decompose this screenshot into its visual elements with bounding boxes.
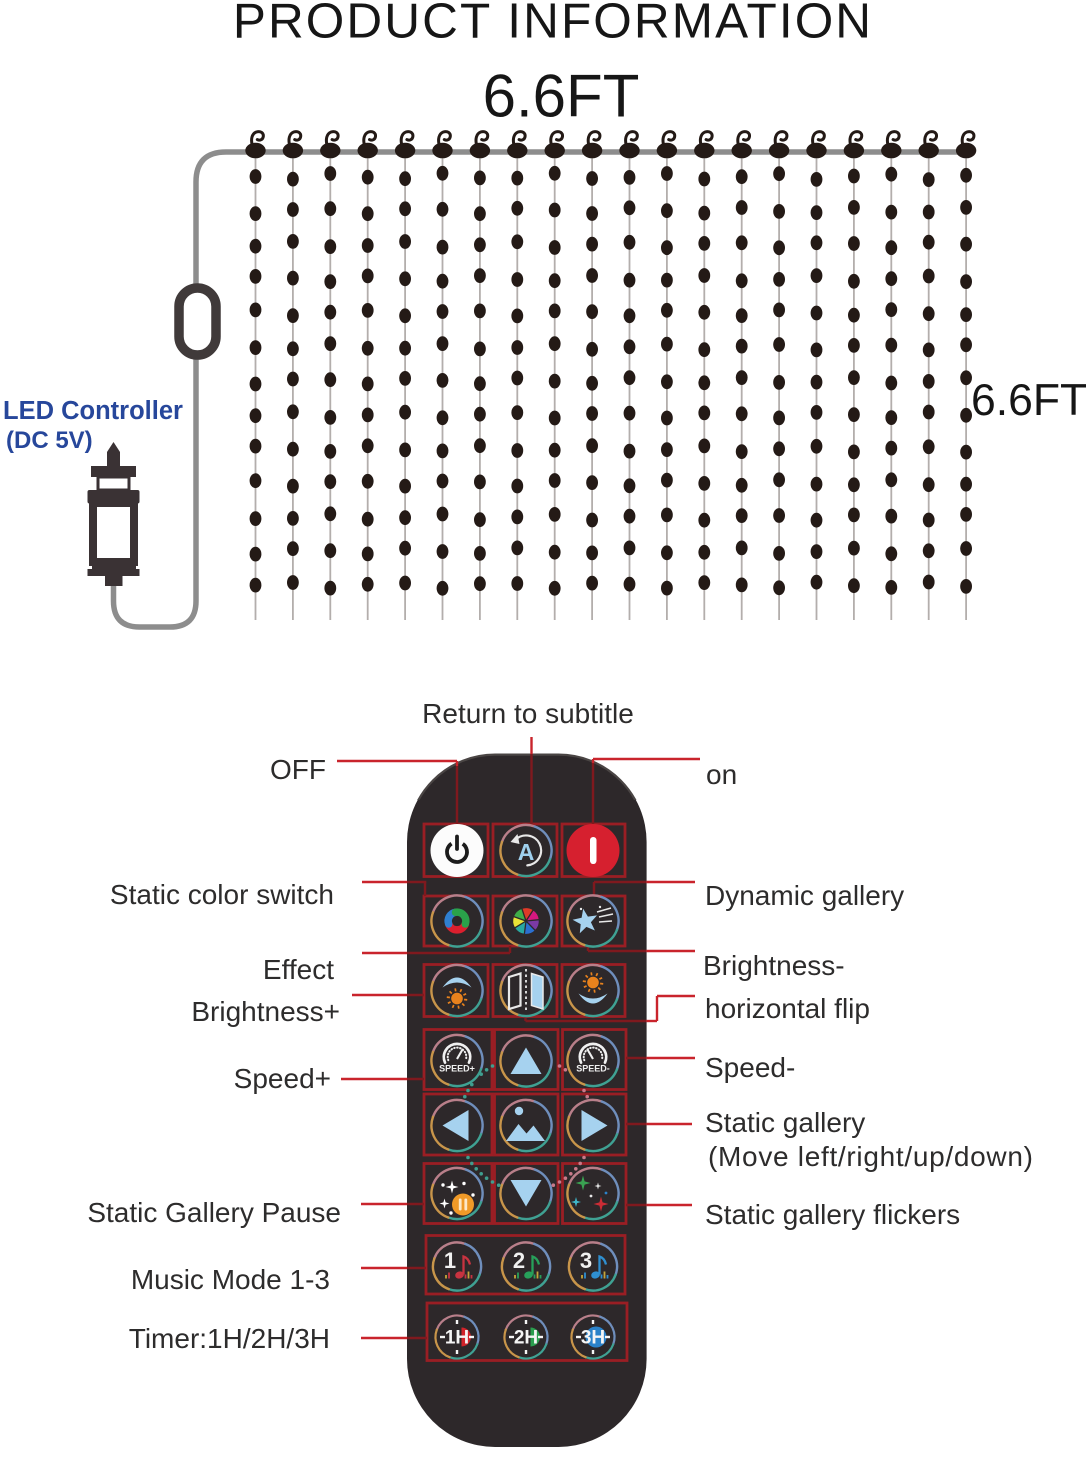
svg-text:Return to subtitle: Return to subtitle [422,698,634,729]
svg-text:SPEED+: SPEED+ [439,1064,475,1074]
svg-text:Timer:1H/2H/3H: Timer:1H/2H/3H [129,1323,330,1354]
svg-text:3: 3 [580,1248,592,1273]
svg-text:Brightness+: Brightness+ [191,996,340,1027]
svg-text:Static color switch: Static color switch [110,879,334,910]
svg-text:LED Controller: LED Controller [3,397,183,425]
svg-text:1: 1 [444,1248,456,1273]
svg-text:(DC 5V): (DC 5V) [6,427,93,454]
svg-text:6.6FT: 6.6FT [483,63,640,130]
svg-text:6.6FT: 6.6FT [971,376,1086,425]
svg-text:Speed+: Speed+ [234,1063,331,1094]
svg-text:1H: 1H [445,1328,469,1349]
svg-text:Dynamic gallery: Dynamic gallery [705,880,904,911]
svg-text:SPEED-: SPEED- [576,1064,610,1074]
svg-text:Effect: Effect [263,954,334,985]
svg-text:Static gallery flickers: Static gallery flickers [705,1199,960,1230]
svg-text:Speed-: Speed- [705,1052,795,1083]
svg-text:(Move left/right/up/down): (Move left/right/up/down) [708,1141,1034,1172]
svg-text:Music Mode 1-3: Music Mode 1-3 [131,1264,330,1295]
svg-text:Static gallery: Static gallery [705,1107,865,1138]
svg-text:OFF: OFF [270,754,326,785]
svg-text:Static Gallery Pause: Static Gallery Pause [87,1197,341,1228]
svg-text:horizontal flip: horizontal flip [705,993,870,1024]
svg-text:PRODUCT INFORMATION: PRODUCT INFORMATION [233,0,873,49]
svg-text:2: 2 [513,1248,525,1273]
svg-text:A: A [518,839,535,865]
svg-text:3H: 3H [581,1328,605,1349]
svg-text:Brightness-: Brightness- [703,950,845,981]
svg-text:2H: 2H [514,1328,538,1349]
svg-text:on: on [706,759,737,790]
